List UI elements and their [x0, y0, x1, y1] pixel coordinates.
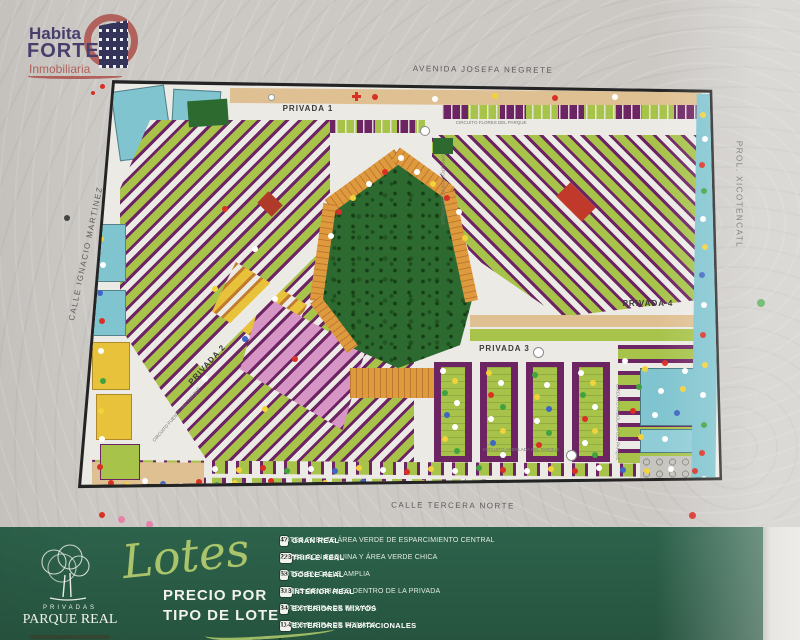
photo-glare [0, 0, 800, 640]
poster-photo: Habita FORTE Inmobiliaria AVENIDA JOSEFA… [0, 0, 800, 640]
